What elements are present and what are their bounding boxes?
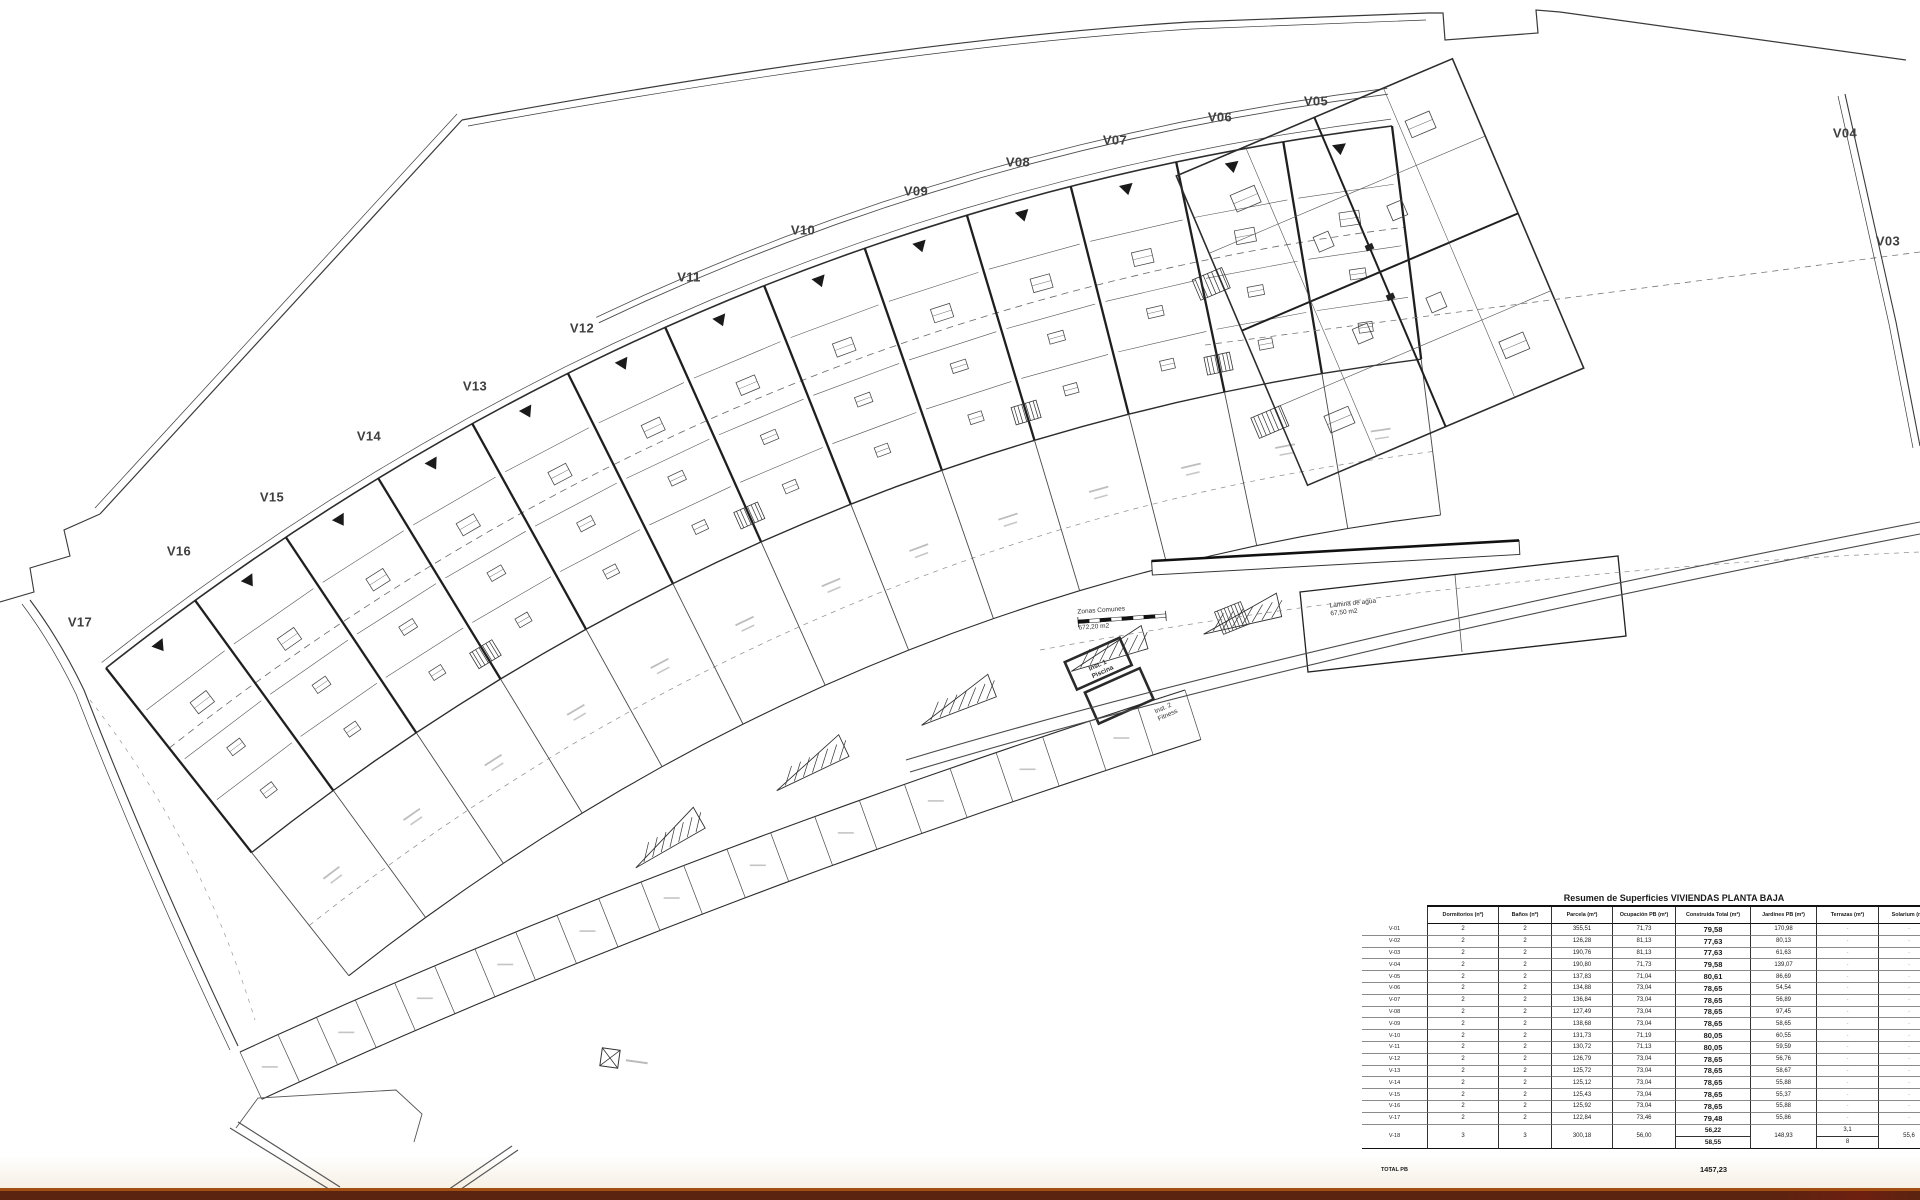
site-plan-page: V05V06V07V08V09V10V11V12V13V14V15V16V17V… <box>0 0 1920 1200</box>
table-cell-terrazas: - <box>1817 1066 1879 1078</box>
table-cell-dormitorios: 2 <box>1427 1018 1499 1030</box>
table-row-label: V-18 <box>1362 1125 1427 1149</box>
table-cell-parcela: 125,43 <box>1552 1089 1613 1101</box>
table-cell-jardines: 55,37 <box>1751 1089 1817 1101</box>
table-cell-value: 56,22 <box>1676 1125 1750 1136</box>
table-col-header <box>1362 907 1427 924</box>
table-cell-construida: 80,61 <box>1676 971 1751 983</box>
table-cell-parcela: 134,88 <box>1552 983 1613 995</box>
table-cell-dormitorios: 2 <box>1427 983 1499 995</box>
table-cell-ocupacion: 73,04 <box>1613 995 1676 1007</box>
table-row-label: V-03 <box>1362 948 1427 960</box>
table-cell-parcela: 190,76 <box>1552 948 1613 960</box>
table-cell-banos: 2 <box>1499 1030 1552 1042</box>
table-cell-construida: 56,2258,55 <box>1676 1125 1751 1149</box>
table-cell-terrazas: - <box>1817 971 1879 983</box>
table-cell-ocupacion: 73,04 <box>1613 983 1676 995</box>
table-cell-ocupacion: 71,19 <box>1613 1030 1676 1042</box>
table-cell-parcela: 130,72 <box>1552 1042 1613 1054</box>
table-row-v-04: V-0422190,8071,7379,58139,07-- <box>1362 959 1920 971</box>
table-cell-dormitorios: 2 <box>1427 995 1499 1007</box>
table-cell-terrazas: - <box>1817 1018 1879 1030</box>
table-cell-terrazas: - <box>1817 1077 1879 1089</box>
table-cell-value: 3,1 <box>1817 1125 1878 1136</box>
table-row-label: V-02 <box>1362 936 1427 948</box>
table-cell-solarium: - <box>1879 1101 1920 1113</box>
table-cell-solarium: - <box>1879 971 1920 983</box>
table-cell-parcela: 125,92 <box>1552 1101 1613 1113</box>
table-header-row: Dormitorios (nº)Baños (nº)Parcela (m²)Oc… <box>1362 907 1920 924</box>
table-cell-dormitorios: 2 <box>1427 1066 1499 1078</box>
table-cell-ocupacion: 71,73 <box>1613 924 1676 936</box>
table-cell-jardines: 60,55 <box>1751 1030 1817 1042</box>
table-row-v-05: V-0522137,8371,0480,6186,69-- <box>1362 971 1920 983</box>
table-cell-construida: 78,65 <box>1676 1101 1751 1113</box>
table-cell-solarium: - <box>1879 948 1920 960</box>
table-cell-construida: 78,65 <box>1676 1054 1751 1066</box>
table-cell-terrazas: - <box>1817 948 1879 960</box>
table-row-label: V-05 <box>1362 971 1427 983</box>
table-cell-terrazas: - <box>1817 983 1879 995</box>
table-cell-ocupacion: 73,04 <box>1613 1077 1676 1089</box>
hatched-ramp <box>624 805 709 868</box>
table-cell-construida: 79,48 <box>1676 1113 1751 1125</box>
table-row-v-16: V-1622125,9273,0478,6555,88-- <box>1362 1101 1920 1113</box>
stairs-hatch <box>1192 268 1230 301</box>
table-cell-jardines: 61,63 <box>1751 948 1817 960</box>
table-row-v-12: V-1222126,7973,0478,6556,76-- <box>1362 1054 1920 1066</box>
table-col-header: Ocupación PB (m²) <box>1613 907 1676 924</box>
table-cell-jardines: 55,88 <box>1751 1101 1817 1113</box>
table-row-v-01: V-0122355,5171,7379,58170,98-- <box>1362 924 1920 936</box>
table-cell-solarium: - <box>1879 924 1920 936</box>
table-cell-construida: 77,63 <box>1676 936 1751 948</box>
table-cell-ocupacion: 73,04 <box>1613 1054 1676 1066</box>
table-cell-dormitorios: 2 <box>1427 1042 1499 1054</box>
table-cell-terrazas: - <box>1817 959 1879 971</box>
table-cell-terrazas: - <box>1817 1089 1879 1101</box>
table-cell-jardines: 58,67 <box>1751 1066 1817 1078</box>
table-cell-dormitorios: 2 <box>1427 1113 1499 1125</box>
table-cell-parcela: 122,84 <box>1552 1113 1613 1125</box>
table-row-v-15: V-1522125,4373,0478,6555,37-- <box>1362 1089 1920 1101</box>
table-cell-solarium: - <box>1879 1077 1920 1089</box>
table-cell-solarium: - <box>1879 1089 1920 1101</box>
table-cell-jardines: 55,86 <box>1751 1113 1817 1125</box>
table-row-label: V-09 <box>1362 1018 1427 1030</box>
stairs-hatch <box>1251 406 1289 439</box>
table-cell-dormitorios: 2 <box>1427 1054 1499 1066</box>
table-cell-dormitorios: 2 <box>1427 971 1499 983</box>
table-cell-solarium: - <box>1879 1054 1920 1066</box>
table-cell-banos: 2 <box>1499 1018 1552 1030</box>
table-cell-parcela: 136,84 <box>1552 995 1613 1007</box>
hatched-ramp <box>1064 624 1151 671</box>
table-row-v-03: V-0322190,7681,1377,6361,63-- <box>1362 948 1920 960</box>
table-cell-jardines: 148,93 <box>1751 1125 1817 1149</box>
table-cell-solarium: - <box>1879 1066 1920 1078</box>
block-v03-v04 <box>1152 59 1583 496</box>
table-cell-banos: 2 <box>1499 1066 1552 1078</box>
table-cell-jardines: 170,98 <box>1751 924 1817 936</box>
table-row-v-08: V-0822127,4973,0478,6597,45-- <box>1362 1007 1920 1019</box>
table-row-label: V-16 <box>1362 1101 1427 1113</box>
table-cell-parcela: 138,68 <box>1552 1018 1613 1030</box>
hatched-ramp <box>766 733 852 791</box>
table-cell-ocupacion: 73,04 <box>1613 1089 1676 1101</box>
table-cell-terrazas: - <box>1817 995 1879 1007</box>
table-cell-ocupacion: 71,73 <box>1613 959 1676 971</box>
table-cell-ocupacion: 73,04 <box>1613 1066 1676 1078</box>
table-col-header: Solarium (m²) <box>1879 907 1920 924</box>
table-cell-dormitorios: 2 <box>1427 1007 1499 1019</box>
table-cell-terrazas: - <box>1817 1101 1879 1113</box>
table-cell-jardines: 139,07 <box>1751 959 1817 971</box>
table-row-v-02: V-0222126,2881,1377,6380,13-- <box>1362 936 1920 948</box>
table-cell-banos: 2 <box>1499 1101 1552 1113</box>
villa-band <box>102 88 1441 975</box>
table-cell-parcela: 126,28 <box>1552 936 1613 948</box>
table-row-v-06: V-0622134,8873,0478,6554,54-- <box>1362 983 1920 995</box>
table-cell-banos: 3 <box>1499 1125 1552 1149</box>
table-cell-parcela: 131,73 <box>1552 1030 1613 1042</box>
table-total-row: TOTAL PB 1457,23 <box>1362 1164 1920 1178</box>
table-cell-terrazas: 3,18 <box>1817 1125 1879 1149</box>
table-cell-jardines: 80,13 <box>1751 936 1817 948</box>
table-cell-construida: 78,65 <box>1676 1018 1751 1030</box>
table-cell-construida: 79,58 <box>1676 959 1751 971</box>
table-cell-construida: 78,65 <box>1676 1077 1751 1089</box>
table-cell-parcela: 126,79 <box>1552 1054 1613 1066</box>
table-cell-ocupacion: 56,00 <box>1613 1125 1676 1149</box>
table-cell-banos: 2 <box>1499 1054 1552 1066</box>
footer-bar <box>0 1191 1920 1200</box>
table-cell-banos: 2 <box>1499 1077 1552 1089</box>
table-cell-ocupacion: 81,13 <box>1613 936 1676 948</box>
table-cell-parcela: 355,51 <box>1552 924 1613 936</box>
table-cell-parcela: 125,12 <box>1552 1077 1613 1089</box>
table-col-header: Baños (nº) <box>1499 907 1552 924</box>
table-cell-solarium: - <box>1879 995 1920 1007</box>
table-cell-terrazas: - <box>1817 1054 1879 1066</box>
table-row-v-13: V-1322125,7273,0478,6558,67-- <box>1362 1066 1920 1078</box>
table-col-header: Dormitorios (nº) <box>1427 907 1499 924</box>
table-cell-dormitorios: 2 <box>1427 924 1499 936</box>
table-cell-terrazas: - <box>1817 924 1879 936</box>
parking-plot-strip <box>240 592 1286 1099</box>
table-cell-solarium: - <box>1879 1007 1920 1019</box>
table-cell-construida: 78,65 <box>1676 983 1751 995</box>
table-row-label: V-08 <box>1362 1007 1427 1019</box>
table-row-label: V-13 <box>1362 1066 1427 1078</box>
table-row-v-09: V-0922138,6873,0478,6558,65-- <box>1362 1018 1920 1030</box>
table-cell-jardines: 86,69 <box>1751 971 1817 983</box>
table-cell-terrazas: - <box>1817 1113 1879 1125</box>
table-row-v-10: V-1022131,7371,1980,0560,55-- <box>1362 1030 1920 1042</box>
table-cell-terrazas: - <box>1817 1030 1879 1042</box>
table-cell-parcela: 190,80 <box>1552 959 1613 971</box>
table-row-label: V-14 <box>1362 1077 1427 1089</box>
table-cell-ocupacion: 81,13 <box>1613 948 1676 960</box>
table-cell-construida: 78,65 <box>1676 1007 1751 1019</box>
table-col-header: Parcela (m²) <box>1552 907 1613 924</box>
table-cell-construida: 80,05 <box>1676 1030 1751 1042</box>
table-cell-jardines: 59,59 <box>1751 1042 1817 1054</box>
table-cell-banos: 2 <box>1499 936 1552 948</box>
table-cell-ocupacion: 71,13 <box>1613 1042 1676 1054</box>
table-row-label: V-07 <box>1362 995 1427 1007</box>
table-row-label: V-04 <box>1362 959 1427 971</box>
table-cell-solarium: - <box>1879 1042 1920 1054</box>
table-cell-terrazas: - <box>1817 1007 1879 1019</box>
table-body: V-0122355,5171,7379,58170,98--V-0222126,… <box>1362 924 1920 1149</box>
table-cell-dormitorios: 2 <box>1427 959 1499 971</box>
table-cell-banos: 2 <box>1499 948 1552 960</box>
table-row-label: V-15 <box>1362 1089 1427 1101</box>
table-cell-construida: 79,58 <box>1676 924 1751 936</box>
table-row-label: V-06 <box>1362 983 1427 995</box>
table-cell-banos: 2 <box>1499 1042 1552 1054</box>
table-col-header: Terrazas (m²) <box>1817 907 1879 924</box>
table-cell-jardines: 58,65 <box>1751 1018 1817 1030</box>
table-cell-dormitorios: 2 <box>1427 948 1499 960</box>
table-cell-banos: 2 <box>1499 924 1552 936</box>
table-cell-dormitorios: 2 <box>1427 1030 1499 1042</box>
table-row-v-11: V-1122130,7271,1380,0559,59-- <box>1362 1042 1920 1054</box>
inst-buildings <box>1065 635 1154 726</box>
scale-bar <box>1078 611 1166 627</box>
table-row-v-17: V-1722122,8473,4679,4855,86-- <box>1362 1113 1920 1125</box>
table-cell-ocupacion: 71,04 <box>1613 971 1676 983</box>
table-cell-banos: 2 <box>1499 1007 1552 1019</box>
table-total-label: TOTAL PB <box>1362 1167 1427 1173</box>
table-cell-jardines: 56,76 <box>1751 1054 1817 1066</box>
table-cell-solarium: - <box>1879 1018 1920 1030</box>
table-cell-banos: 2 <box>1499 1113 1552 1125</box>
table-cell-banos: 2 <box>1499 1089 1552 1101</box>
table-cell-solarium: - <box>1879 959 1920 971</box>
hatched-ramp <box>913 673 1000 725</box>
table-row-label: V-12 <box>1362 1054 1427 1066</box>
table-cell-dormitorios: 3 <box>1427 1125 1499 1149</box>
table-row-v-14: V-1422125,1273,0478,6555,88-- <box>1362 1077 1920 1089</box>
table-cell-dormitorios: 2 <box>1427 1101 1499 1113</box>
table-cell-construida: 78,65 <box>1676 995 1751 1007</box>
table-cell-banos: 2 <box>1499 983 1552 995</box>
table-cell-jardines: 97,45 <box>1751 1007 1817 1019</box>
table-total-value: 1457,23 <box>1676 1165 1751 1174</box>
table-cell-parcela: 137,83 <box>1552 971 1613 983</box>
table-cell-solarium: - <box>1879 936 1920 948</box>
table-row-v-18: V-1833300,1856,0056,2258,55148,933,1855,… <box>1362 1125 1920 1149</box>
table-row-label: V-10 <box>1362 1030 1427 1042</box>
table-cell-jardines: 55,88 <box>1751 1077 1817 1089</box>
table-cell-construida: 80,05 <box>1676 1042 1751 1054</box>
table-cell-value: 58,55 <box>1676 1136 1750 1148</box>
table-cell-dormitorios: 2 <box>1427 1077 1499 1089</box>
table-cell-construida: 77,63 <box>1676 948 1751 960</box>
table-cell-ocupacion: 73,04 <box>1613 1018 1676 1030</box>
table-cell-terrazas: - <box>1817 1042 1879 1054</box>
table-col-header: Construida Total (m²) <box>1676 907 1751 924</box>
table-cell-solarium: - <box>1879 983 1920 995</box>
pool-area <box>1065 540 1626 726</box>
table-row-label: V-01 <box>1362 924 1427 936</box>
table-cell-jardines: 54,54 <box>1751 983 1817 995</box>
table-cell-parcela: 125,72 <box>1552 1066 1613 1078</box>
table-cell-dormitorios: 2 <box>1427 936 1499 948</box>
table-cell-solarium: - <box>1879 1113 1920 1125</box>
table-cell-ocupacion: 73,46 <box>1613 1113 1676 1125</box>
table-cell-value: 8 <box>1817 1136 1878 1148</box>
table-cell-terrazas: - <box>1817 936 1879 948</box>
table-cell-solarium: - <box>1879 1030 1920 1042</box>
table-cell-ocupacion: 73,04 <box>1613 1007 1676 1019</box>
table-cell-parcela: 127,49 <box>1552 1007 1613 1019</box>
table-cell-solarium: 55,6 <box>1879 1125 1920 1149</box>
table-cell-parcela: 300,18 <box>1552 1125 1613 1149</box>
table-title: Resumen de Superficies VIVIENDAS PLANTA … <box>1427 892 1920 907</box>
plan-symbol <box>600 1048 649 1072</box>
table-cell-jardines: 56,89 <box>1751 995 1817 1007</box>
table-cell-banos: 2 <box>1499 959 1552 971</box>
table-cell-ocupacion: 73,04 <box>1613 1101 1676 1113</box>
table-cell-construida: 78,65 <box>1676 1066 1751 1078</box>
table-col-header: Jardines PB (m²) <box>1751 907 1817 924</box>
table-cell-banos: 2 <box>1499 995 1552 1007</box>
table-row-label: V-17 <box>1362 1113 1427 1125</box>
table-cell-banos: 2 <box>1499 971 1552 983</box>
table-cell-construida: 78,65 <box>1676 1089 1751 1101</box>
table-row-label: V-11 <box>1362 1042 1427 1054</box>
table-row-v-07: V-0722136,8473,0478,6556,89-- <box>1362 995 1920 1007</box>
table-cell-dormitorios: 2 <box>1427 1089 1499 1101</box>
